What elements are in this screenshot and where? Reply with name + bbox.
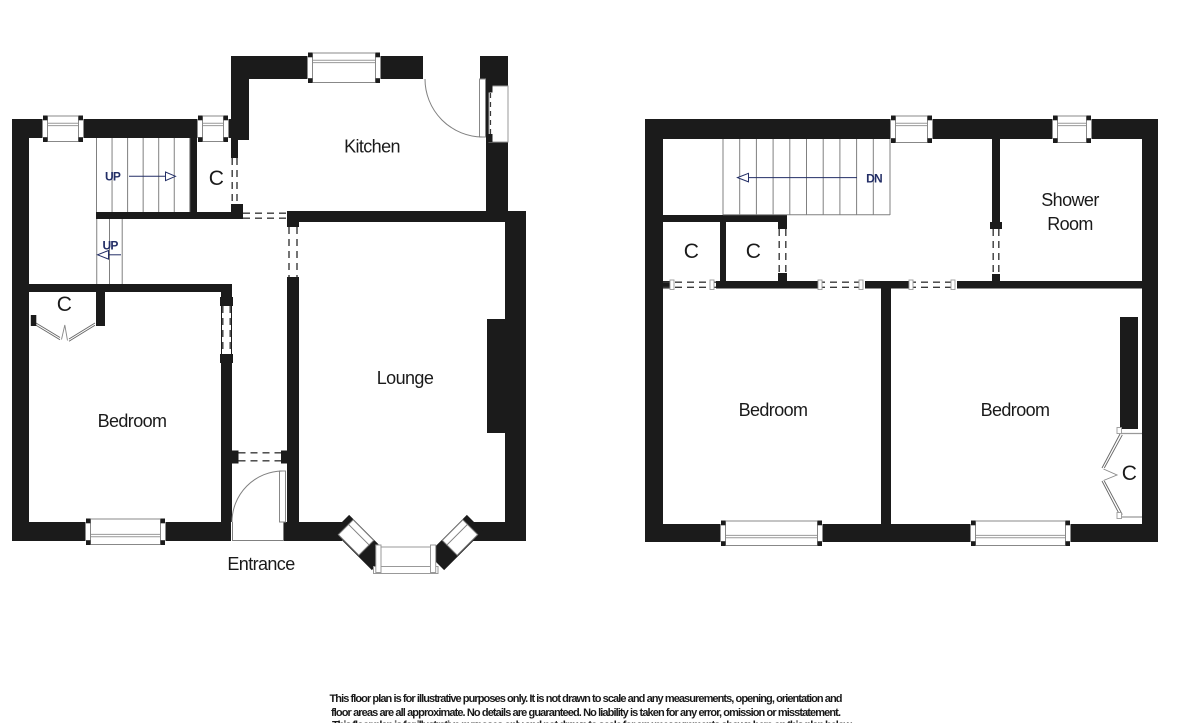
svg-text:Bedroom: Bedroom xyxy=(739,400,808,420)
svg-text:C: C xyxy=(57,293,72,316)
svg-text:UP: UP xyxy=(105,170,121,184)
svg-text:Lounge: Lounge xyxy=(377,368,434,388)
svg-text:C: C xyxy=(684,240,699,263)
svg-text:This floor plan is for illustr: This floor plan is for illustrative purp… xyxy=(332,719,852,723)
svg-text:floor areas are all approximat: floor areas are all approximate. No deta… xyxy=(331,707,841,719)
svg-text:This floor plan is for illustr: This floor plan is for illustrative purp… xyxy=(329,693,842,705)
svg-text:Kitchen: Kitchen xyxy=(344,137,400,157)
svg-text:UP: UP xyxy=(102,239,118,253)
svg-text:Bedroom: Bedroom xyxy=(98,411,167,431)
svg-text:C: C xyxy=(209,167,224,190)
svg-text:C: C xyxy=(1122,462,1137,485)
svg-text:C: C xyxy=(746,240,761,263)
svg-text:Room: Room xyxy=(1047,214,1093,234)
svg-text:Entrance: Entrance xyxy=(227,554,295,574)
svg-text:DN: DN xyxy=(866,172,882,186)
svg-text:Bedroom: Bedroom xyxy=(981,400,1050,420)
svg-text:Shower: Shower xyxy=(1041,190,1099,210)
